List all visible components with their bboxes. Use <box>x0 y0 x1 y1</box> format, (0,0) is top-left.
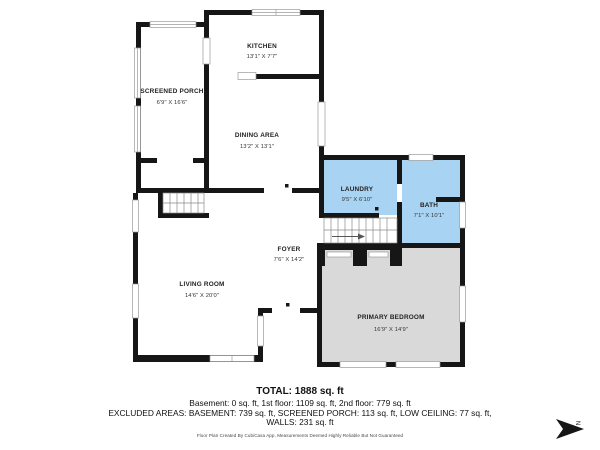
room-dims-foyer: 7'6" X 14'2" <box>274 257 305 263</box>
credit-line: Floor Plan Created By CubiCasa App, Meas… <box>0 433 600 438</box>
room-label-laundry: LAUNDRY <box>341 186 374 193</box>
stairs-entry <box>163 193 204 213</box>
area-summary: TOTAL: 1888 sq. ft Basement: 0 sq. ft, 1… <box>0 386 600 428</box>
room-label-living-room: LIVING ROOM <box>179 281 224 288</box>
floorplan: KITCHEN 13'1" X 7'7" SCREENED PORCH 6'9"… <box>0 0 600 450</box>
room-dims-laundry: 9'5" X 6'10" <box>342 197 373 203</box>
room-dims-living-room: 14'6" X 20'0" <box>185 293 219 299</box>
room-label-screened-porch: SCREENED PORCH <box>140 88 203 95</box>
stairs-main <box>324 218 397 243</box>
room-dims-screened-porch: 6'9" X 16'6" <box>157 100 188 106</box>
room-label-primary-bedroom: PRIMARY BEDROOM <box>357 314 424 321</box>
room-label-foyer: FOYER <box>277 246 300 253</box>
room-dims-primary-bedroom: 16'9" X 14'9" <box>374 327 408 333</box>
room-label-kitchen: KITCHEN <box>247 43 277 50</box>
room-label-dining-area: DINING AREA <box>235 132 279 139</box>
room-dims-kitchen: 13'1" X 7'7" <box>247 54 278 60</box>
room-label-bath: BATH <box>420 202 438 209</box>
summary-total: TOTAL: 1888 sq. ft <box>0 386 600 397</box>
room-dims-bath: 7'1" X 10'1" <box>414 213 445 219</box>
summary-walls: WALLS: 231 sq. ft <box>0 418 600 428</box>
room-dims-dining-area: 13'2" X 13'1" <box>240 144 274 150</box>
